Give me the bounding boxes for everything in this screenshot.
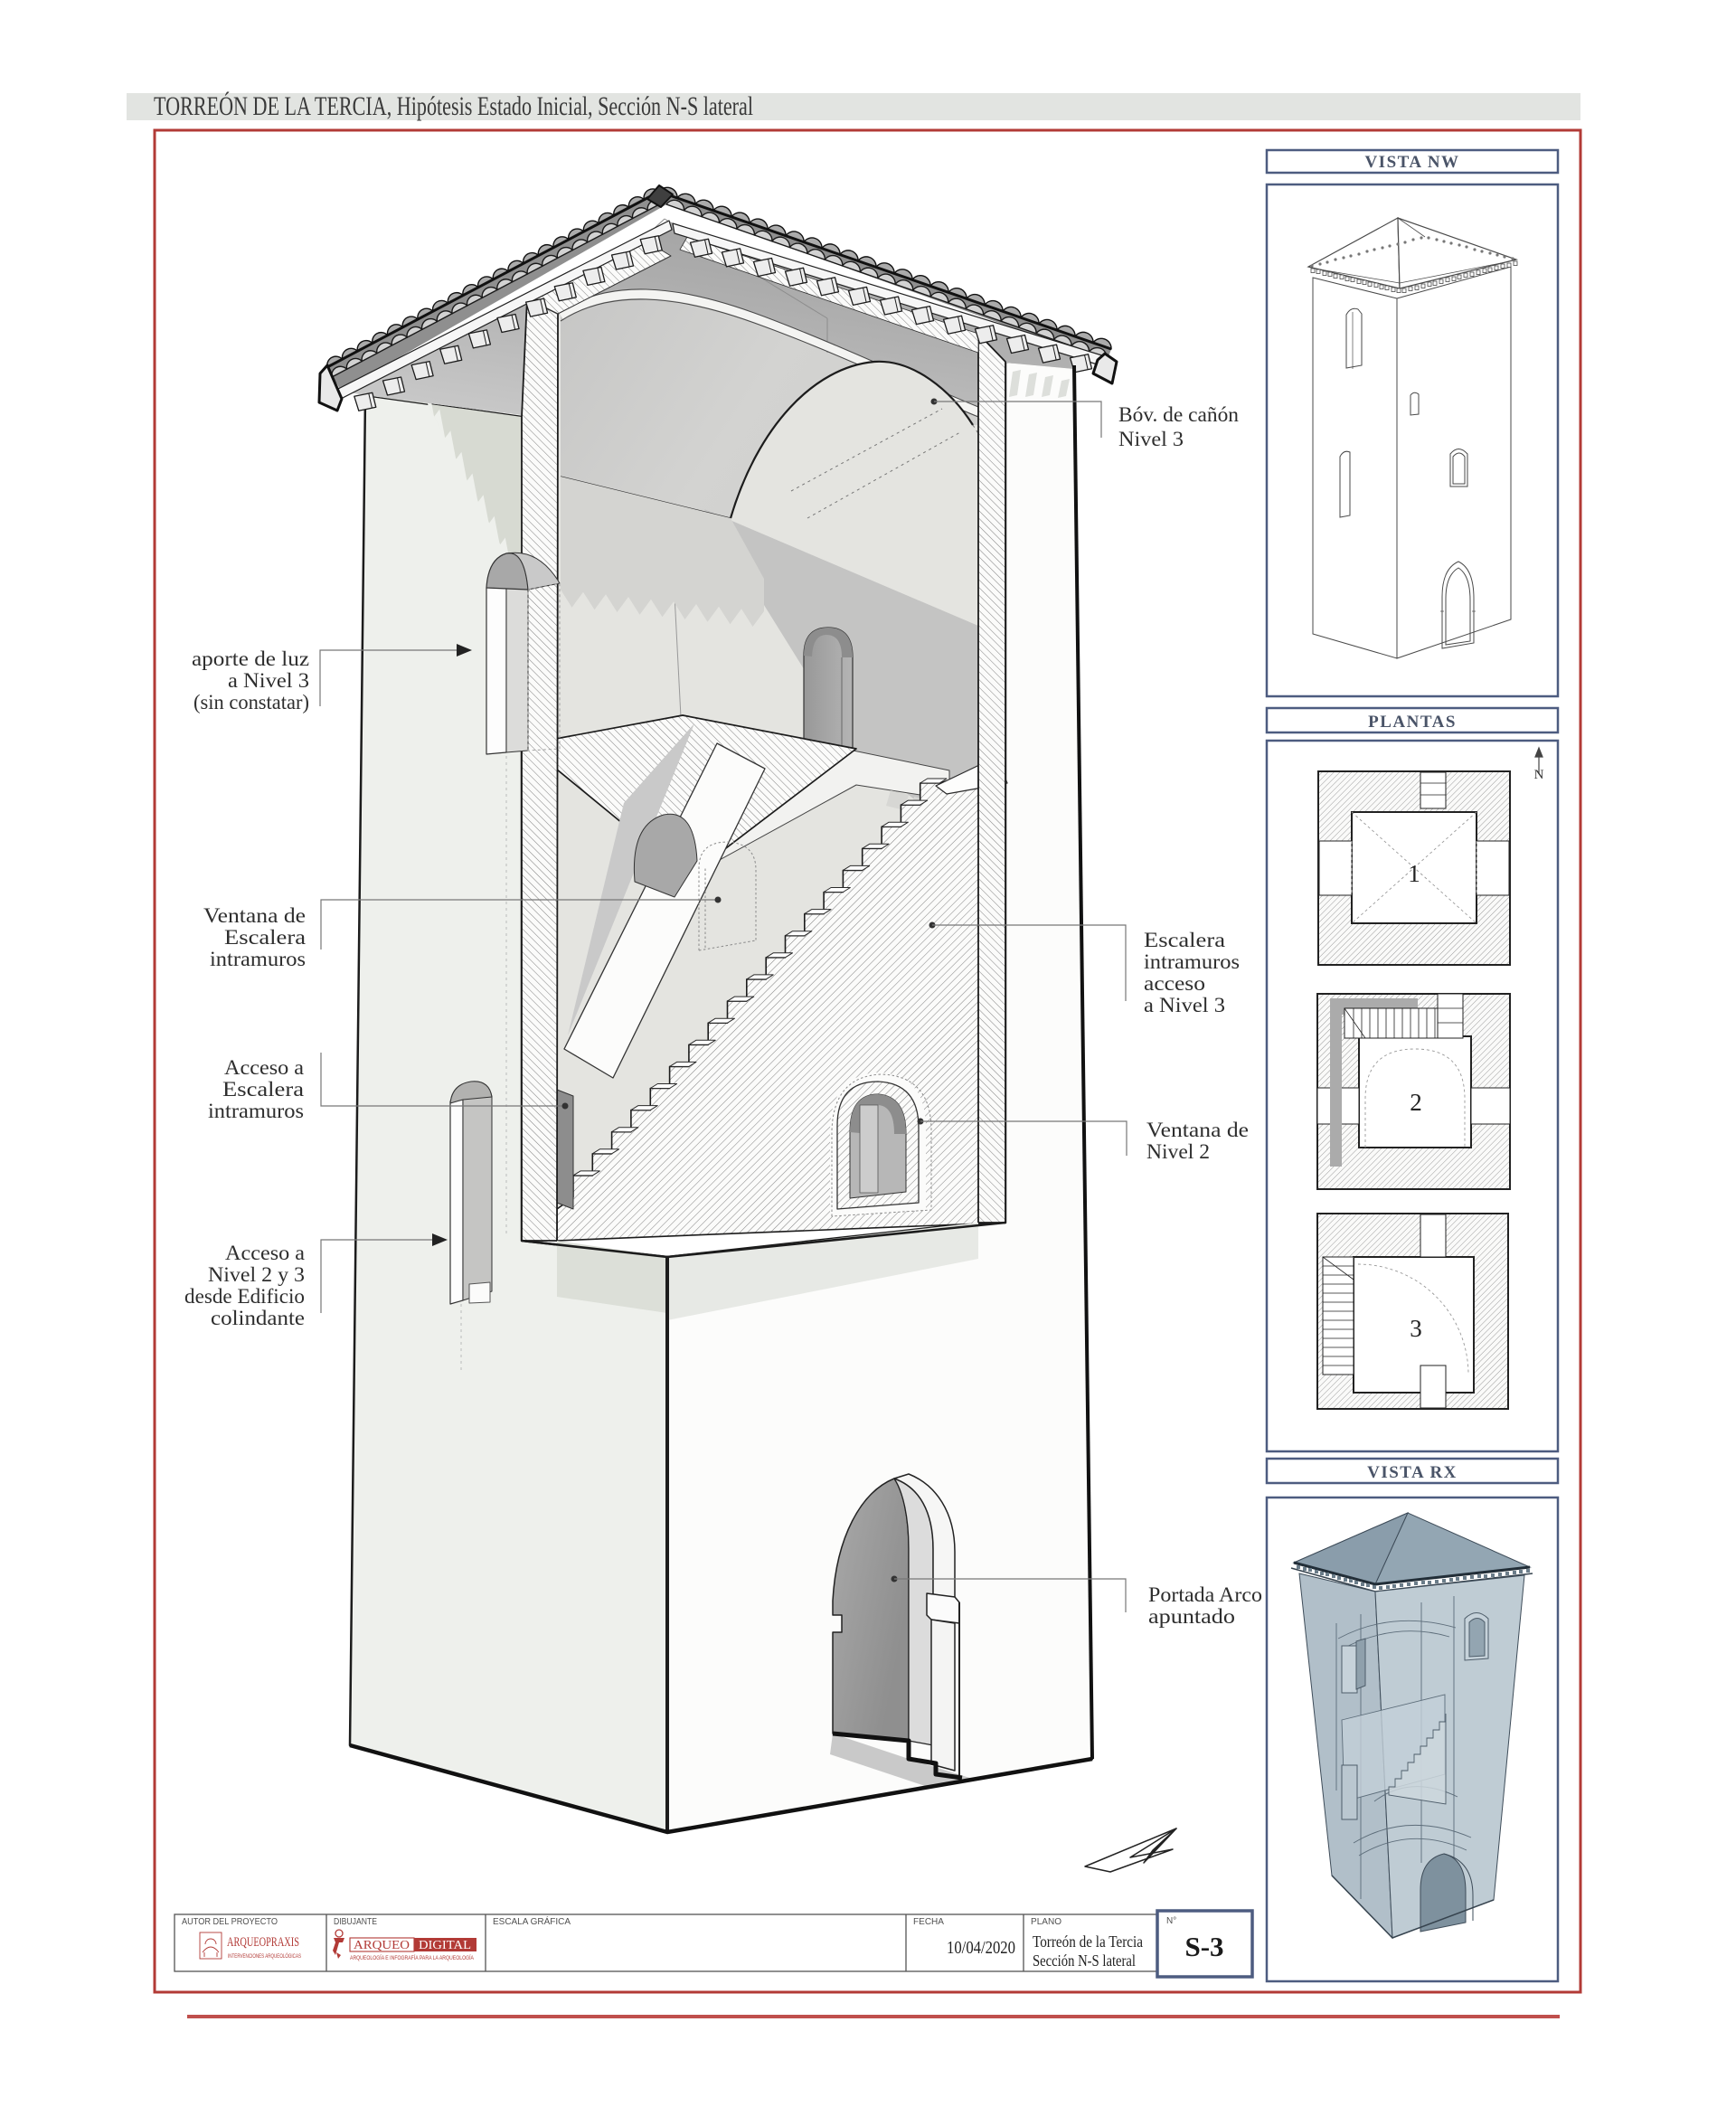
svg-text:1: 1 [1408,860,1420,887]
svg-text:S-3: S-3 [1184,1931,1223,1962]
svg-text:apuntado: apuntado [1148,1605,1235,1629]
svg-text:Portada Arco: Portada Arco [1148,1583,1262,1607]
svg-text:aporte de luz: aporte de luz [192,647,309,671]
svg-text:AUTOR DEL PROYECTO: AUTOR DEL PROYECTO [182,1917,278,1927]
svg-text:colindante: colindante [211,1307,305,1330]
svg-text:VISTA RX: VISTA RX [1367,1463,1458,1482]
svg-text:ARQUEOLOGÍA E INFOGRAFÍA PARA: ARQUEOLOGÍA E INFOGRAFÍA PARA LA ARQUEOL… [350,1955,474,1961]
svg-text:N: N [1534,768,1544,782]
svg-text:2: 2 [1410,1089,1422,1116]
svg-text:PLANO: PLANO [1031,1917,1061,1927]
svg-text:Ventana de: Ventana de [1146,1119,1249,1142]
svg-text:Escalera: Escalera [222,1078,305,1101]
svg-text:a Nivel 3: a Nivel 3 [1144,994,1225,1017]
svg-text:intramuros: intramuros [1144,950,1240,974]
svg-text:INTERVENCIONES ARQUEOLÓGICAS: INTERVENCIONES ARQUEOLÓGICAS [228,1953,301,1960]
svg-text:10/04/2020: 10/04/2020 [947,1938,1015,1958]
svg-text:Acceso a: Acceso a [225,1242,306,1265]
svg-text:FECHA: FECHA [913,1917,944,1927]
svg-text:TORREÓN DE LA TERCIA, Hipótesi: TORREÓN DE LA TERCIA, Hipótesis Estado I… [154,91,753,121]
svg-text:desde Edificio: desde Edificio [184,1285,305,1309]
svg-text:intramuros: intramuros [208,1100,304,1123]
svg-text:Torreón de la Tercia: Torreón de la Tercia [1033,1932,1143,1951]
svg-text:Ventana de: Ventana de [203,904,306,928]
svg-text:(sin constatar): (sin constatar) [193,691,309,714]
svg-text:Nivel 3: Nivel 3 [1118,428,1184,451]
svg-text:DIGITAL: DIGITAL [419,1938,471,1951]
svg-text:Nivel 2: Nivel 2 [1146,1140,1210,1164]
svg-text:Bóv. de cañón: Bóv. de cañón [1118,403,1239,427]
svg-text:ESCALA GRÁFICA: ESCALA GRÁFICA [493,1915,571,1927]
svg-text:N°: N° [1166,1916,1176,1926]
svg-text:VISTA NW: VISTA NW [1364,153,1459,172]
svg-text:Escalera: Escalera [224,926,307,950]
svg-text:DIBUJANTE: DIBUJANTE [334,1917,377,1927]
svg-text:ARQUEOPRAXIS: ARQUEOPRAXIS [227,1935,299,1950]
svg-text:3: 3 [1410,1315,1422,1342]
svg-text:Sección N-S lateral: Sección N-S lateral [1033,1951,1136,1970]
svg-text:intramuros: intramuros [210,948,306,971]
svg-text:ARQUEO: ARQUEO [354,1938,410,1951]
svg-text:a Nivel 3: a Nivel 3 [228,669,309,693]
svg-text:PLANTAS: PLANTAS [1368,713,1457,732]
svg-text:Escalera: Escalera [1144,929,1226,952]
svg-text:Nivel 2 y 3: Nivel 2 y 3 [208,1263,305,1287]
svg-text:Acceso a: Acceso a [224,1056,305,1080]
svg-text:acceso: acceso [1144,972,1205,996]
